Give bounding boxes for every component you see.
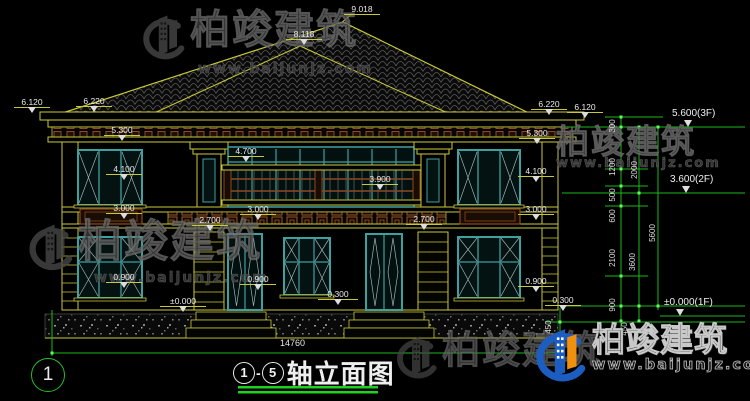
axis-circle-end: 5 [262, 362, 284, 384]
window-2f-right [454, 150, 524, 208]
window-1f-left [74, 237, 146, 301]
window-1f-right [454, 237, 524, 301]
drawing-title: 1 - 5 轴立面图 [233, 354, 395, 391]
grid-axis-bubble: 1 [31, 358, 65, 392]
cad-elevation-screenshot: 柏竣建筑 www.baijunjz.com 柏竣建筑 www.baijunjz.… [0, 0, 750, 401]
spandrel-panel-left [80, 209, 142, 224]
axis-dash: - [256, 365, 261, 381]
elevation-drawing [0, 0, 750, 401]
axis-circle-start: 1 [233, 362, 255, 384]
window-1f-center [280, 238, 334, 298]
eave-cornice [40, 112, 584, 142]
spandrel-panel-right [460, 209, 520, 224]
hip-roof [50, 14, 537, 117]
entry-door-right [366, 234, 402, 310]
window-2f-left [74, 150, 146, 208]
entry-door-left [228, 234, 262, 310]
overall-width-dimension: 14760 [280, 338, 305, 348]
plinth-base [45, 312, 558, 338]
drawing-title-text: 轴立面图 [287, 354, 395, 391]
